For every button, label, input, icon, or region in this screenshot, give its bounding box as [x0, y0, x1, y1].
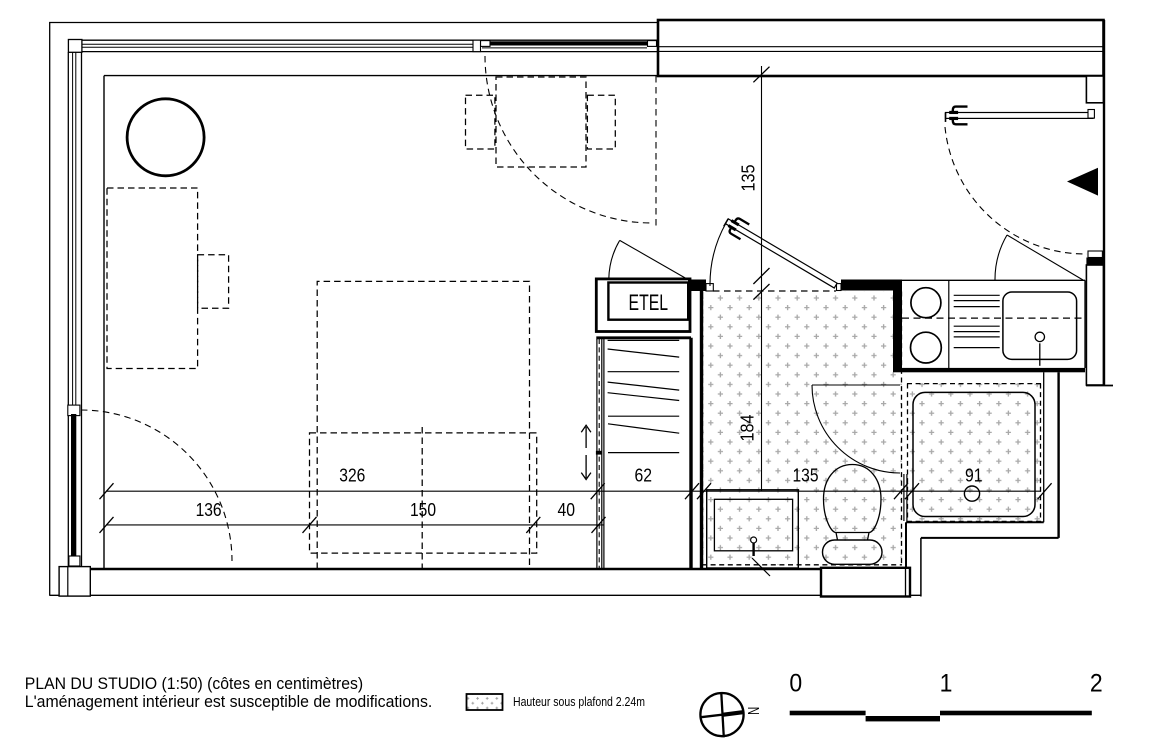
- svg-text:2: 2: [1090, 670, 1103, 698]
- svg-text:150: 150: [410, 499, 436, 520]
- svg-text:135: 135: [793, 465, 819, 486]
- svg-text:136: 136: [196, 499, 222, 520]
- svg-text:1: 1: [940, 670, 953, 698]
- svg-text:135: 135: [738, 165, 759, 192]
- svg-text:184: 184: [737, 415, 758, 442]
- svg-text:91: 91: [965, 465, 983, 486]
- svg-text:L'aménagement intérieur est su: L'aménagement intérieur est susceptible …: [25, 692, 433, 711]
- svg-text:326: 326: [339, 465, 365, 486]
- svg-text:N: N: [744, 707, 761, 715]
- svg-text:0: 0: [789, 670, 802, 698]
- svg-text:ETEL: ETEL: [629, 290, 669, 315]
- svg-text:40: 40: [557, 499, 575, 520]
- svg-text:Hauteur sous plafond 2.24m: Hauteur sous plafond 2.24m: [513, 695, 645, 709]
- svg-text:PLAN DU STUDIO (1:50) (côtes e: PLAN DU STUDIO (1:50) (côtes en centimèt…: [25, 674, 363, 693]
- svg-text:62: 62: [635, 465, 653, 486]
